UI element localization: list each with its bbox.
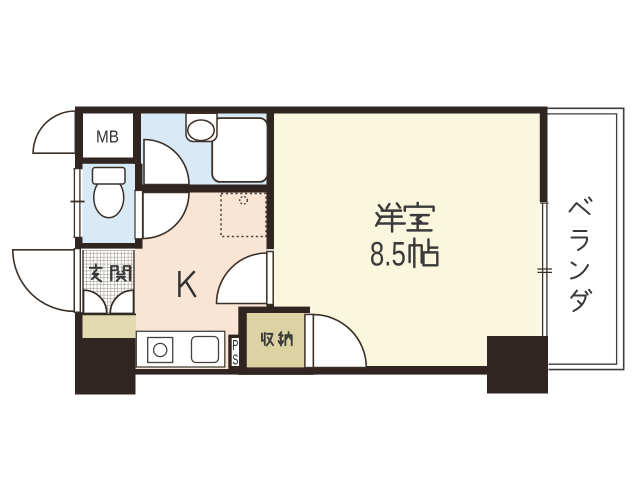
svg-text:8.5: 8.5 bbox=[370, 236, 406, 273]
svg-text:MB: MB bbox=[96, 127, 119, 147]
svg-text:S: S bbox=[232, 351, 238, 368]
